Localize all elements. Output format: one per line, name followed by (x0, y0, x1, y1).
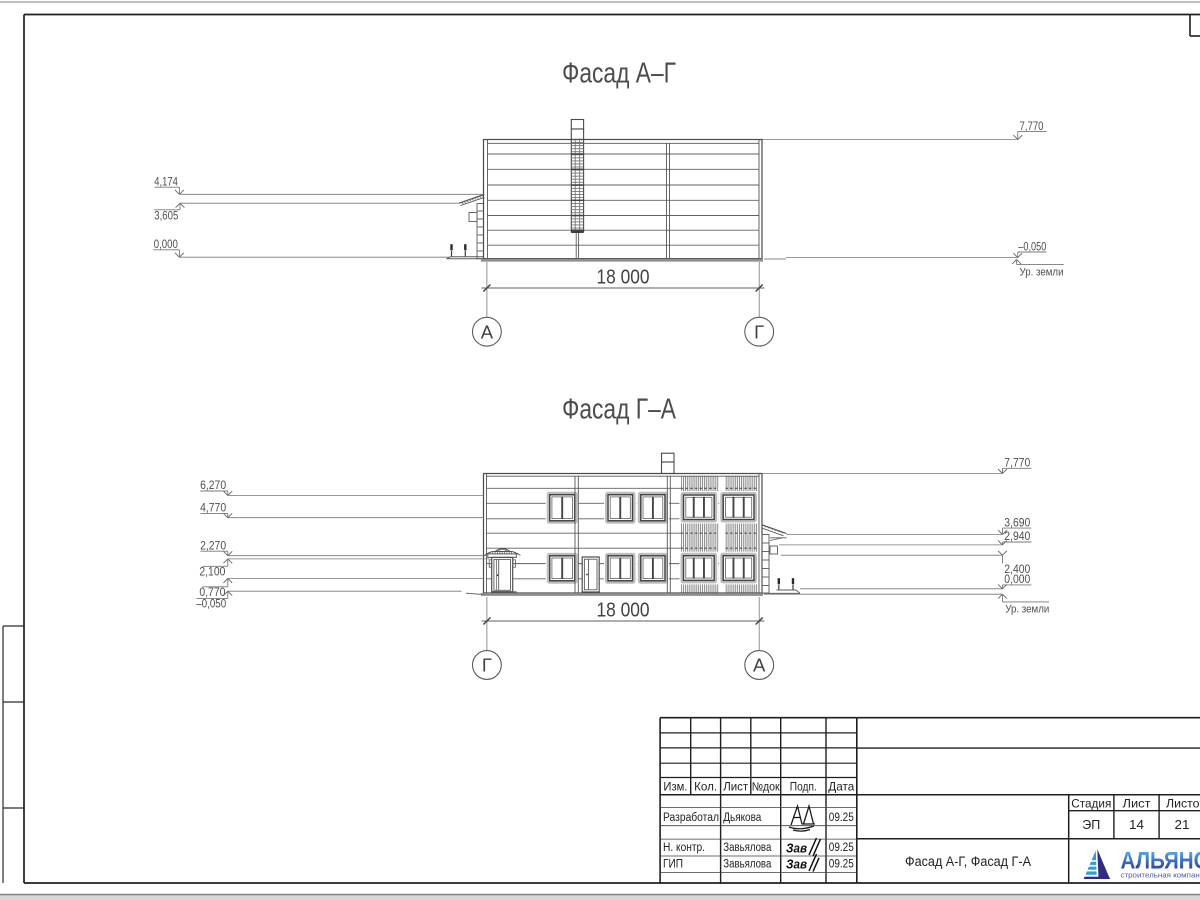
svg-text:09.25: 09.25 (829, 812, 854, 824)
svg-text:Фасад Г–А: Фасад Г–А (562, 394, 677, 426)
svg-text:Дьякова: Дьякова (723, 812, 762, 824)
svg-text:2,100: 2,100 (199, 567, 225, 579)
svg-text:7,770: 7,770 (1004, 458, 1030, 470)
svg-text:№док: №док (752, 780, 781, 794)
svg-text:Завьялова: Завьялова (723, 842, 772, 854)
svg-text:4,174: 4,174 (154, 176, 178, 188)
svg-text:–0,050: –0,050 (196, 599, 226, 611)
svg-text:Лист: Лист (1123, 796, 1152, 810)
svg-text:–0,050: –0,050 (1018, 241, 1046, 253)
svg-text:Дата: Дата (828, 780, 854, 794)
svg-text:Листов: Листов (1166, 796, 1200, 810)
svg-text:2,270: 2,270 (200, 541, 226, 553)
svg-text:0,000: 0,000 (1004, 574, 1030, 586)
svg-text:ГИП: ГИП (663, 858, 683, 870)
svg-text:Разработал: Разработал (663, 812, 719, 824)
svg-text:Фасад А-Г, Фасад Г-А: Фасад А-Г, Фасад Г-А (905, 854, 1031, 869)
svg-text:0,770: 0,770 (199, 587, 225, 599)
svg-text:09.25: 09.25 (829, 858, 854, 870)
svg-text:Ур. земли: Ур. земли (1005, 603, 1049, 615)
svg-text:Н. контр.: Н. контр. (663, 842, 705, 854)
svg-text:14: 14 (1129, 817, 1144, 832)
svg-text:21: 21 (1175, 817, 1190, 832)
svg-text:2,940: 2,940 (1004, 531, 1030, 543)
svg-text:7,770: 7,770 (1020, 121, 1044, 133)
svg-text:Г: Г (754, 321, 764, 342)
svg-text:Зав: Зав (786, 858, 807, 872)
svg-text:Завьялова: Завьялова (723, 858, 772, 870)
svg-text:18 000: 18 000 (597, 266, 650, 289)
svg-text:Ур. земли: Ур. земли (1020, 266, 1064, 278)
svg-text:Кол.: Кол. (694, 780, 717, 794)
svg-text:18 000: 18 000 (597, 599, 650, 622)
svg-text:3,690: 3,690 (1004, 517, 1030, 529)
svg-text:0,000: 0,000 (154, 239, 178, 251)
svg-text:09.25: 09.25 (829, 842, 854, 854)
svg-text:6,270: 6,270 (200, 480, 226, 492)
svg-text:Фасад А–Г: Фасад А–Г (562, 58, 676, 90)
svg-text:Стадия: Стадия (1071, 796, 1111, 810)
svg-text:А: А (481, 321, 494, 342)
svg-text:А: А (753, 655, 766, 676)
svg-text:Лист: Лист (723, 780, 748, 794)
svg-text:Г: Г (482, 655, 492, 676)
svg-text:Зав: Зав (786, 842, 807, 856)
svg-text:4,770: 4,770 (200, 503, 226, 515)
svg-text:Подп.: Подп. (790, 780, 817, 794)
svg-text:ЭП: ЭП (1082, 817, 1100, 832)
svg-text:строительная компания: строительная компания (1121, 870, 1200, 879)
svg-text:Изм.: Изм. (663, 780, 687, 794)
svg-text:3,605: 3,605 (154, 210, 178, 222)
